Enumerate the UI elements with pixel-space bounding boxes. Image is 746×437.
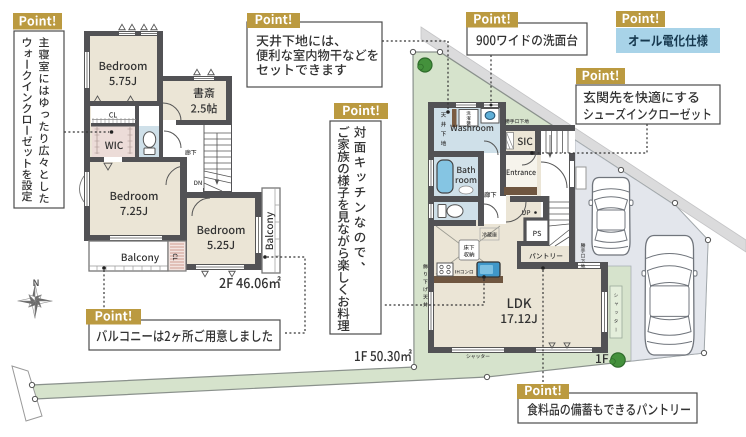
- svg-text:N: N: [33, 278, 40, 288]
